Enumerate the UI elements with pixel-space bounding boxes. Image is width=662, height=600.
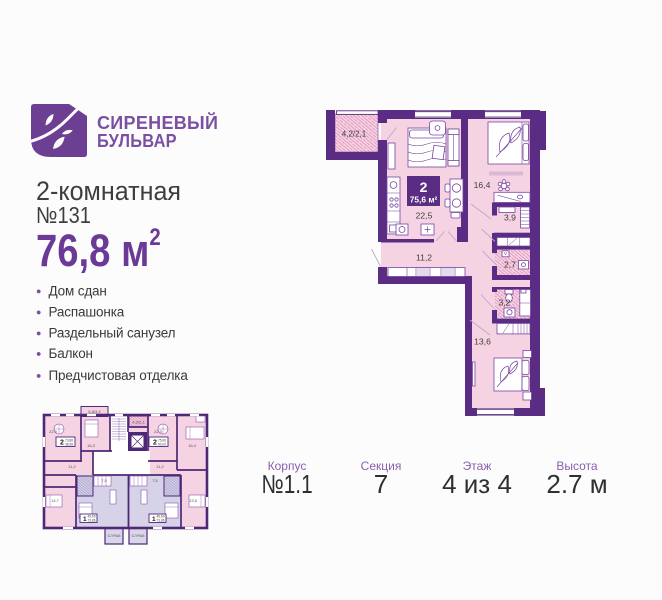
svg-text:1: 1 — [152, 516, 156, 523]
svg-text:2: 2 — [420, 179, 428, 195]
svg-text:7,5: 7,5 — [101, 478, 107, 483]
svg-text:11,2: 11,2 — [416, 253, 432, 263]
svg-text:75,6 м²: 75,6 м² — [410, 195, 438, 205]
svg-text:16,4: 16,4 — [474, 180, 491, 190]
svg-text:16,3: 16,3 — [87, 443, 96, 448]
svg-text:3,2: 3,2 — [499, 298, 511, 308]
svg-text:2: 2 — [60, 440, 64, 447]
svg-text:13,6: 13,6 — [474, 337, 491, 347]
svg-text:22,5: 22,5 — [416, 211, 433, 221]
svg-text:73,86: 73,86 — [157, 519, 165, 523]
svg-text:11,2: 11,2 — [156, 464, 164, 469]
svg-text:7,5: 7,5 — [152, 478, 158, 483]
svg-text:6,8/3,4: 6,8/3,4 — [88, 409, 101, 414]
svg-text:14,7: 14,7 — [51, 498, 60, 503]
svg-text:4,2/2,1: 4,2/2,1 — [342, 130, 367, 139]
svg-text:4,2/2,1: 4,2/2,1 — [132, 420, 145, 425]
svg-text:22,5: 22,5 — [154, 429, 163, 434]
svg-text:С/У№3: С/У№3 — [131, 533, 145, 538]
svg-text:73,86: 73,86 — [88, 519, 96, 523]
svg-text:2,7: 2,7 — [504, 260, 516, 270]
svg-text:16,4: 16,4 — [188, 443, 197, 448]
svg-text:С/У№3: С/У№3 — [107, 533, 121, 538]
svg-text:38,98: 38,98 — [65, 443, 73, 447]
svg-text:90,00: 90,00 — [158, 443, 166, 447]
svg-text:13,6: 13,6 — [189, 498, 198, 503]
svg-text:22,5: 22,5 — [49, 429, 58, 434]
svg-text:3,9: 3,9 — [504, 213, 516, 223]
svg-text:11,2: 11,2 — [68, 464, 76, 469]
svg-text:2: 2 — [153, 440, 157, 447]
svg-text:1: 1 — [83, 516, 87, 523]
